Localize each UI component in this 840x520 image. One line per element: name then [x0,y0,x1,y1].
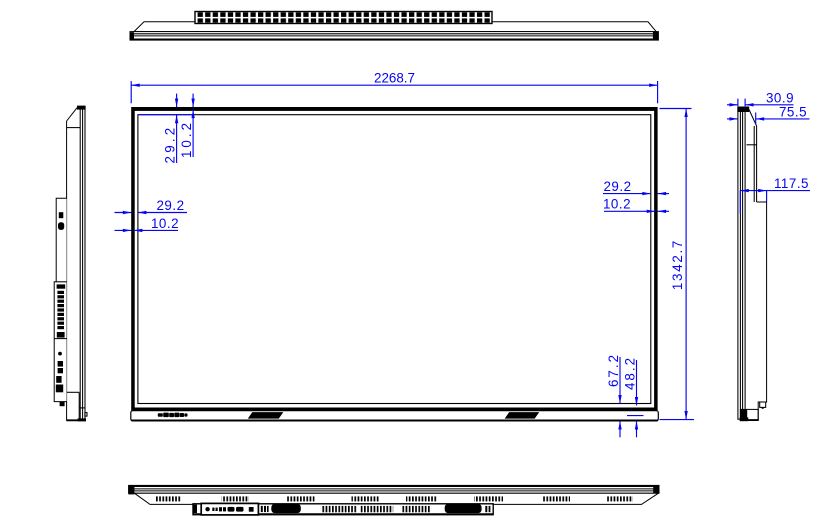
svg-text:29.2: 29.2 [603,179,631,194]
svg-text:10.2: 10.2 [179,120,194,158]
svg-text:2268.7: 2268.7 [374,71,415,86]
svg-text:1342.7: 1342.7 [670,239,685,290]
svg-text:67.2: 67.2 [606,353,621,387]
svg-text:30.9: 30.9 [766,91,794,106]
svg-text:29.2: 29.2 [163,125,178,164]
svg-text:10.2: 10.2 [603,197,631,212]
svg-text:29.2: 29.2 [156,198,184,213]
svg-text:48.2: 48.2 [623,356,638,390]
svg-text:117.5: 117.5 [774,176,809,191]
svg-text:10.2: 10.2 [151,216,179,231]
svg-text:75.5: 75.5 [779,105,807,120]
